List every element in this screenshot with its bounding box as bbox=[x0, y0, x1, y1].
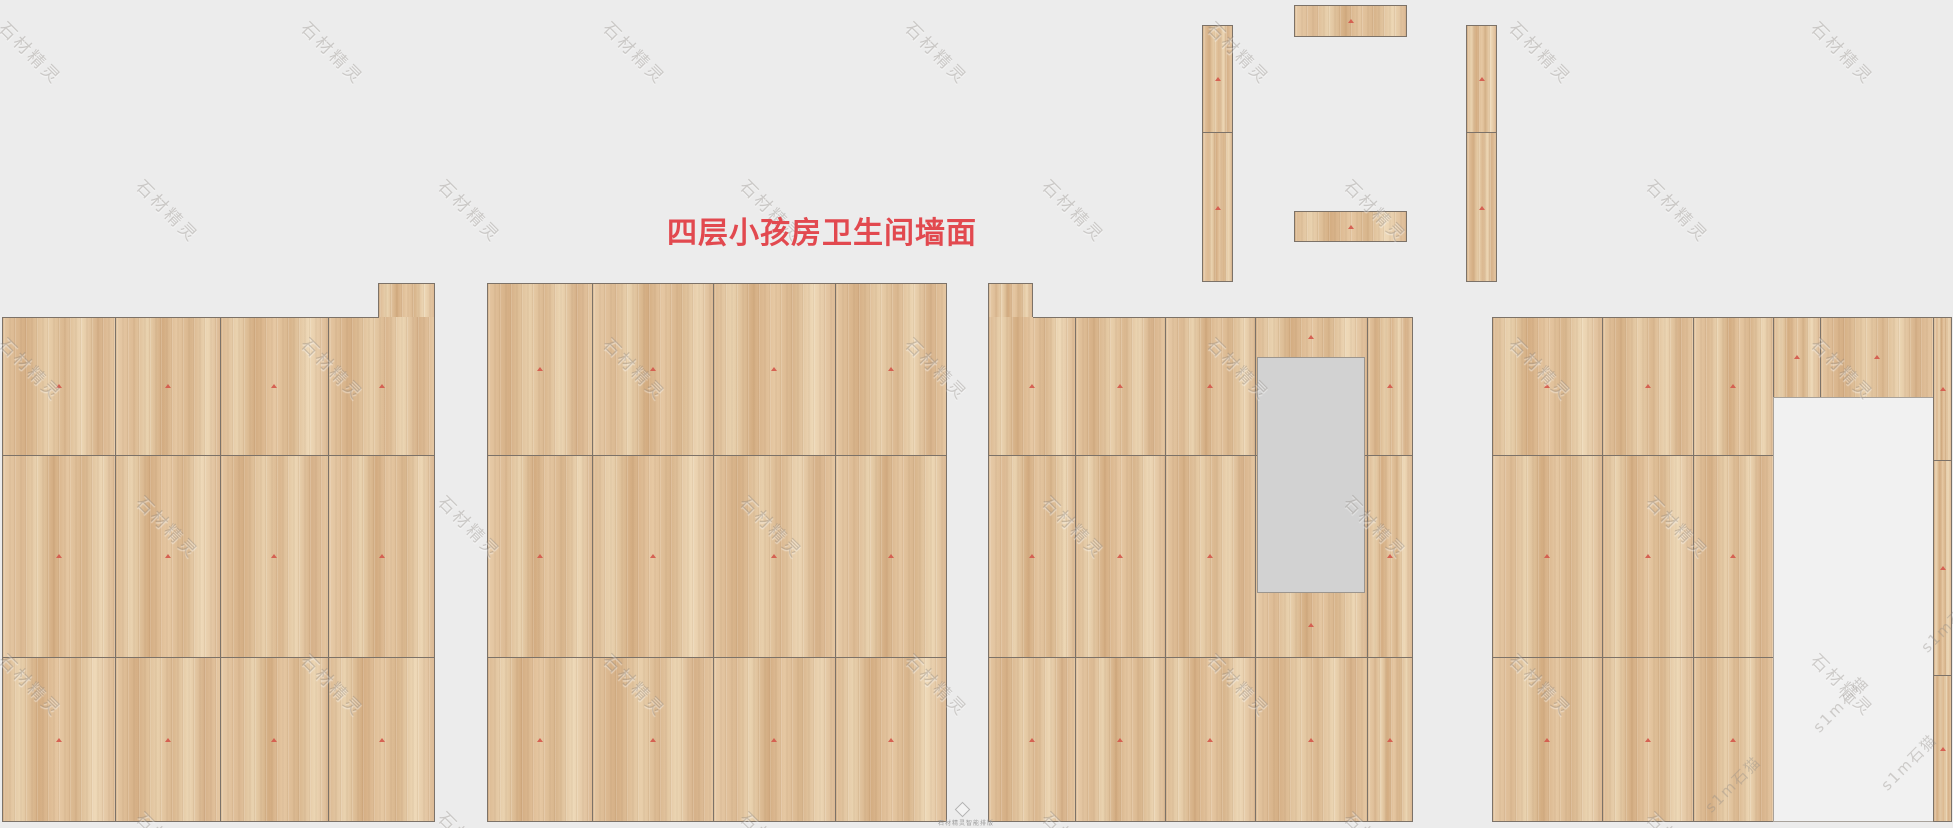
wall-3-panel bbox=[988, 283, 1033, 318]
panel-mark-icon bbox=[650, 738, 656, 742]
watermark-text: 石材精灵 bbox=[1504, 15, 1578, 89]
panel-mark-icon bbox=[537, 738, 543, 742]
panel-mark-icon bbox=[1544, 738, 1550, 742]
wall-1-joint-line bbox=[328, 317, 379, 318]
panel-mark-icon bbox=[1117, 554, 1123, 558]
panel-mark-icon bbox=[1348, 225, 1354, 229]
panel-mark-icon bbox=[1117, 384, 1123, 388]
watermark-text: 石材精灵 bbox=[433, 173, 507, 247]
wall-3-joint-line bbox=[1033, 317, 1076, 318]
panel-mark-icon bbox=[1544, 554, 1550, 558]
panel-mark-icon bbox=[271, 554, 277, 558]
panel-mark-icon bbox=[271, 384, 277, 388]
panel-mark-icon bbox=[1645, 554, 1651, 558]
panel-mark-icon bbox=[165, 554, 171, 558]
panel-mark-icon bbox=[56, 738, 62, 742]
wall-3-opening-gray bbox=[1257, 357, 1365, 593]
panel-mark-icon bbox=[1940, 566, 1946, 570]
panel-mark-icon bbox=[1479, 77, 1485, 81]
panel-mark-icon bbox=[1544, 384, 1550, 388]
panel-mark-icon bbox=[379, 738, 385, 742]
panel-mark-icon bbox=[888, 554, 894, 558]
panel-mark-icon bbox=[1029, 384, 1035, 388]
panel-mark-icon bbox=[1940, 747, 1946, 751]
panel-mark-icon bbox=[165, 384, 171, 388]
watermark-text: 石材精灵 bbox=[1806, 15, 1880, 89]
watermark-text: 石材精灵 bbox=[1641, 173, 1715, 247]
panel-mark-icon bbox=[1730, 554, 1736, 558]
panel-mark-icon bbox=[1207, 738, 1213, 742]
page-title: 四层小孩房卫生间墙面 bbox=[667, 208, 977, 252]
panel-mark-icon bbox=[1387, 554, 1393, 558]
panel-mark-icon bbox=[1479, 206, 1485, 210]
watermark-text: 石材精灵 bbox=[598, 15, 672, 89]
panel-mark-icon bbox=[888, 367, 894, 371]
panel-mark-icon bbox=[1730, 384, 1736, 388]
watermark-logo-icon bbox=[955, 802, 971, 818]
panel-mark-icon bbox=[1387, 384, 1393, 388]
panel-mark-icon bbox=[1874, 355, 1880, 359]
panel-mark-icon bbox=[1029, 554, 1035, 558]
panel-mark-icon bbox=[1215, 77, 1221, 81]
panel-mark-icon bbox=[1794, 355, 1800, 359]
panel-mark-icon bbox=[1387, 738, 1393, 742]
panel-mark-icon bbox=[1308, 738, 1314, 742]
watermark-text: 石材精灵 bbox=[131, 173, 205, 247]
panel-mark-icon bbox=[1645, 384, 1651, 388]
panel-mark-icon bbox=[56, 384, 62, 388]
panel-mark-icon bbox=[1215, 206, 1221, 210]
wall-1-panel bbox=[378, 283, 435, 318]
panel-mark-icon bbox=[165, 738, 171, 742]
panel-mark-icon bbox=[1207, 554, 1213, 558]
fine-print: 石材精灵智能排版 bbox=[938, 818, 1058, 827]
panel-mark-icon bbox=[771, 554, 777, 558]
panel-mark-icon bbox=[1940, 387, 1946, 391]
watermark-text: 石材精灵 bbox=[900, 15, 974, 89]
wall-4-opening-white bbox=[1773, 397, 1933, 822]
panel-mark-icon bbox=[1308, 623, 1314, 627]
panel-mark-icon bbox=[537, 367, 543, 371]
panel-mark-icon bbox=[537, 554, 543, 558]
panel-mark-icon bbox=[1730, 738, 1736, 742]
panel-mark-icon bbox=[771, 738, 777, 742]
panel-mark-icon bbox=[1645, 738, 1651, 742]
panel-mark-icon bbox=[379, 554, 385, 558]
panel-mark-icon bbox=[1117, 738, 1123, 742]
watermark-text: 石材精灵 bbox=[1037, 173, 1111, 247]
panel-mark-icon bbox=[1308, 335, 1314, 339]
panel-mark-icon bbox=[771, 367, 777, 371]
panel-mark-icon bbox=[271, 738, 277, 742]
panel-mark-icon bbox=[650, 554, 656, 558]
panel-mark-icon bbox=[56, 554, 62, 558]
panel-mark-icon bbox=[379, 384, 385, 388]
layout-drawing-canvas: 四层小孩房卫生间墙面 石材精灵石材精灵石材精灵石材精灵石材精灵石材精灵石材精灵石… bbox=[0, 0, 1953, 828]
panel-mark-icon bbox=[650, 367, 656, 371]
panel-mark-icon bbox=[888, 738, 894, 742]
watermark-text: 石材精灵 bbox=[296, 15, 370, 89]
panel-mark-icon bbox=[1029, 738, 1035, 742]
panel-mark-icon bbox=[1348, 19, 1354, 23]
watermark-text: 石材精灵 bbox=[0, 15, 69, 89]
panel-mark-icon bbox=[1207, 384, 1213, 388]
